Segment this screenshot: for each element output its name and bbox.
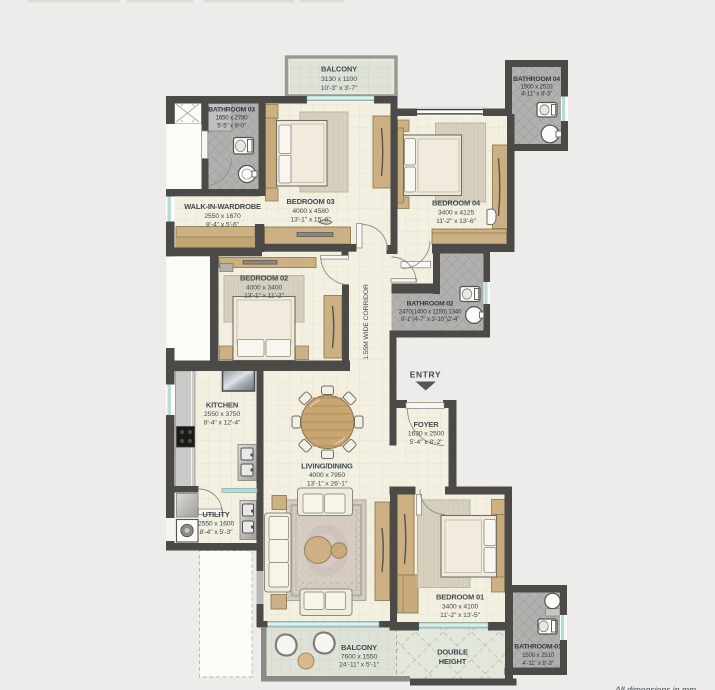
svg-text:WALK-IN-WARDROBE: WALK-IN-WARDROBE <box>184 202 261 211</box>
svg-text:LIVING/DINING: LIVING/DINING <box>301 462 353 471</box>
svg-text:3130 x 1100: 3130 x 1100 <box>321 76 357 83</box>
svg-text:13'-1" x 11'-2": 13'-1" x 11'-2" <box>244 293 284 300</box>
svg-text:2550 x 1670: 2550 x 1670 <box>204 213 241 220</box>
svg-text:1.55M WIDE CORRIDOR: 1.55M WIDE CORRIDOR <box>363 284 370 360</box>
svg-text:4'-11" x 8'-3": 4'-11" x 8'-3" <box>522 660 553 667</box>
svg-text:All dimensions in mm: All dimensions in mm <box>614 685 696 690</box>
svg-text:UTILITY: UTILITY <box>202 510 229 519</box>
svg-text:7600 x 1550: 7600 x 1550 <box>341 654 378 661</box>
svg-text:4000 x 3400: 4000 x 3400 <box>246 285 283 292</box>
svg-text:BATHROOM 03: BATHROOM 03 <box>208 107 255 114</box>
svg-text:1650 x 2780: 1650 x 2780 <box>216 115 249 122</box>
svg-text:FOYER: FOYER <box>413 420 439 429</box>
svg-text:BALCONY: BALCONY <box>321 65 357 74</box>
svg-text:BATHROOM 02: BATHROOM 02 <box>407 301 454 308</box>
svg-text:BEDROOM 04: BEDROOM 04 <box>432 199 481 208</box>
svg-text:13'-1" x 15'-0": 13'-1" x 15'-0" <box>290 217 331 224</box>
svg-text:HEIGHT: HEIGHT <box>439 657 467 666</box>
svg-text:BATHROOM 04: BATHROOM 04 <box>513 76 560 83</box>
svg-text:1630 x 2500: 1630 x 2500 <box>408 431 445 438</box>
svg-text:8'-4" x 5'-3": 8'-4" x 5'-3" <box>200 529 234 536</box>
svg-text:2550 x 1600: 2550 x 1600 <box>198 521 235 528</box>
svg-text:24'-11" x 5'-1": 24'-11" x 5'-1" <box>339 662 379 669</box>
svg-text:BALCONY: BALCONY <box>341 643 377 652</box>
svg-text:3400 x 4125: 3400 x 4125 <box>438 210 475 217</box>
svg-text:4000 x 7950: 4000 x 7950 <box>309 472 346 479</box>
svg-text:8'-4" x 12'-4": 8'-4" x 12'-4" <box>204 420 241 427</box>
svg-text:ENTRY: ENTRY <box>410 370 442 380</box>
svg-text:2550 x 3750: 2550 x 3750 <box>204 411 241 418</box>
svg-text:5'-5" x 9'-0": 5'-5" x 9'-0" <box>217 123 246 130</box>
svg-text:BEDROOM 03: BEDROOM 03 <box>286 197 334 206</box>
svg-text:KITCHEN: KITCHEN <box>206 401 238 410</box>
svg-text:5'-4" x 8'-2": 5'-4" x 8'-2" <box>410 439 444 446</box>
svg-text:DOUBLE: DOUBLE <box>437 648 468 657</box>
svg-text:BEDROOM 02: BEDROOM 02 <box>240 274 288 283</box>
svg-text:3400 x 4100: 3400 x 4100 <box>442 604 479 611</box>
svg-text:13'-1" x 26'-1": 13'-1" x 26'-1" <box>307 481 348 488</box>
svg-text:8'-4" x 5'-6": 8'-4" x 5'-6" <box>206 222 240 229</box>
svg-text:11'-2" x 13'-6": 11'-2" x 13'-6" <box>436 218 476 225</box>
svg-text:1500 x 2510: 1500 x 2510 <box>522 652 555 659</box>
svg-text:11'-2" x 13'-5": 11'-2" x 13'-5" <box>440 612 480 619</box>
svg-text:2470(1400 x 1150) 1340: 2470(1400 x 1150) 1340 <box>399 309 462 316</box>
svg-text:4000 x 4580: 4000 x 4580 <box>292 208 329 215</box>
svg-text:1500 x 2510: 1500 x 2510 <box>521 84 554 91</box>
svg-text:BEDROOM 01: BEDROOM 01 <box>436 593 484 602</box>
svg-text:BATHROOM-01: BATHROOM-01 <box>514 644 562 651</box>
svg-text:10'-3" x 3'-7": 10'-3" x 3'-7" <box>321 85 358 92</box>
svg-text:4'-11" x 8'-3": 4'-11" x 8'-3" <box>521 91 552 98</box>
svg-text:8'-1"(4'-7" x 3'-10")2'-4": 8'-1"(4'-7" x 3'-10")2'-4" <box>401 316 459 323</box>
